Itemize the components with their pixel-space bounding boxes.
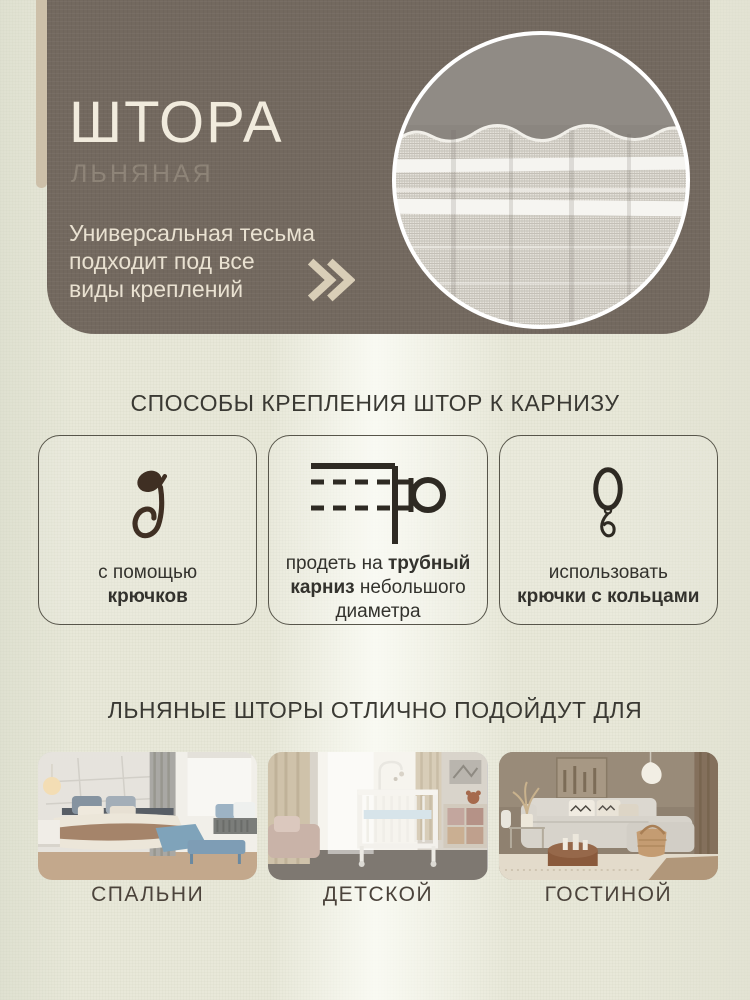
attachment-card-rod: продеть на трубный карниз небольшого диа… (268, 435, 487, 625)
attachment-cards-row: с помощьюкрючков продеть на трубный карн… (38, 435, 718, 625)
attachment-heading: СПОСОБЫ КРЕПЛЕНИЯ ШТОР К КАРНИЗУ (0, 390, 750, 417)
curtain-rod-icon (277, 452, 478, 552)
attachment-card-rings: использоватькрючки с кольцами (499, 435, 718, 625)
curtain-hook-icon (47, 452, 248, 561)
rooms-photos-row (38, 752, 718, 880)
text-regular: небольшого диаметра (335, 577, 465, 622)
nursery-photo (268, 752, 487, 880)
text-bold: крючков (98, 585, 197, 609)
living-room-photo (499, 752, 718, 880)
product-title: ШТОРА (69, 94, 284, 152)
hero-description: Универсальная тесьма подходит под все ви… (69, 219, 319, 303)
text-regular: с помощью (98, 561, 197, 585)
bedroom-photo (38, 752, 257, 880)
product-subtitle: ЛЬНЯНАЯ (71, 160, 214, 189)
room-label-living-room: ГОСТИНОЙ (499, 883, 718, 907)
double-chevron-icon (303, 256, 355, 304)
attachment-card-hooks-text: с помощьюкрючков (98, 561, 197, 609)
accent-bar (36, 0, 47, 188)
text-bold: крючки с кольцами (517, 585, 699, 609)
curtain-tape-closeup-photo (391, 30, 691, 330)
curtain-ring-icon (508, 452, 709, 561)
room-label-nursery: ДЕТСКОЙ (268, 883, 487, 907)
rooms-labels-row: СПАЛЬНИ ДЕТСКОЙ ГОСТИНОЙ (38, 883, 718, 907)
attachment-card-rod-text: продеть на трубный карниз небольшого диа… (277, 552, 478, 624)
text-regular: продеть на (286, 553, 388, 574)
room-label-bedroom: СПАЛЬНИ (38, 883, 257, 907)
rooms-heading: ЛЬНЯНЫЕ ШТОРЫ ОТЛИЧНО ПОДОЙДУТ ДЛЯ (0, 697, 750, 724)
hero-card: ШТОРА ЛЬНЯНАЯ Универсальная тесьма подхо… (47, 0, 710, 334)
curtain-infographic: ШТОРА ЛЬНЯНАЯ Универсальная тесьма подхо… (0, 0, 750, 1000)
attachment-card-hooks: с помощьюкрючков (38, 435, 257, 625)
text-regular: использовать (517, 561, 699, 585)
attachment-card-rings-text: использоватькрючки с кольцами (517, 561, 699, 609)
